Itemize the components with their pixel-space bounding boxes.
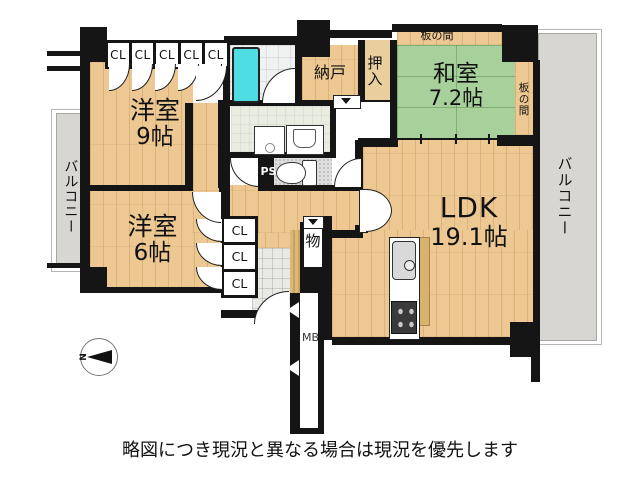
wall <box>47 263 80 268</box>
wall <box>318 293 324 432</box>
itanoma-top-label: 板の間 <box>408 30 466 42</box>
floor-plan: バルコニー バルコニー <box>0 0 640 480</box>
western9-label: 洋室 9帖 <box>95 97 215 150</box>
meter-box-label: MB <box>302 332 316 345</box>
western6-size: 6帖 <box>95 241 210 266</box>
toilet-bowl <box>276 162 306 184</box>
pipe-space: PS <box>258 158 274 186</box>
wall <box>531 357 540 382</box>
wall <box>224 36 298 45</box>
mono-label: 物 <box>304 233 322 250</box>
wall <box>47 66 80 71</box>
wall <box>218 100 230 188</box>
caption: 略図につき現況と異なる場合は現況を優先します <box>0 441 640 461</box>
mono-door-notch <box>308 219 318 225</box>
meter-box-strip <box>300 293 318 428</box>
nando-label: 納戸 <box>301 64 359 82</box>
wall <box>90 287 227 293</box>
closet-cell: CL <box>224 245 255 268</box>
compass-north-label: N <box>79 353 89 361</box>
pipe-space-label: PS <box>261 166 272 178</box>
western6-label: 洋室 6帖 <box>95 213 210 266</box>
washer-drain <box>265 143 275 153</box>
wall <box>47 51 80 56</box>
tick <box>488 134 490 144</box>
wall <box>390 40 397 140</box>
balcony-right-label: バルコニー <box>556 146 573 246</box>
vanity-basin <box>293 129 316 148</box>
balcony-left-label: バルコニー <box>62 148 77 244</box>
wall <box>330 106 336 158</box>
ldk-label: LDK 19.1帖 <box>395 193 543 250</box>
bathtub <box>232 47 260 103</box>
oshiire-label: 押入 <box>366 44 383 98</box>
oshiire-track <box>364 100 390 102</box>
japanese-room-name: 和室 <box>400 62 512 87</box>
ldk-name: LDK <box>395 193 543 224</box>
wall <box>515 135 539 146</box>
western9-name: 洋室 <box>95 97 215 125</box>
wall <box>330 30 392 38</box>
ldk-size: 19.1帖 <box>395 224 543 250</box>
itanoma-side-label: 板の間 <box>517 70 529 128</box>
japanese-room-label: 和室 7.2帖 <box>400 62 512 110</box>
wall <box>300 267 322 293</box>
western6-name: 洋室 <box>95 213 210 241</box>
closet-cell: CL <box>224 219 255 242</box>
wall <box>358 138 398 147</box>
closet-cell: CL <box>132 43 153 67</box>
closet-cell: CL <box>205 43 226 67</box>
mb-notch <box>287 360 299 376</box>
compass: N <box>80 338 118 376</box>
toilet-door-arc <box>334 158 361 187</box>
wall <box>332 337 512 345</box>
closet-cell: CL <box>108 43 129 67</box>
wall <box>510 322 538 357</box>
fusuma-track <box>397 138 497 140</box>
closet-cell: CL <box>181 43 202 67</box>
western9-door-arc <box>230 158 259 187</box>
tick <box>420 134 422 144</box>
kitchen-faucet <box>404 260 415 271</box>
wall <box>80 40 90 293</box>
closet-cell: CL <box>224 272 255 295</box>
closet-column: CL CL CL <box>221 216 258 298</box>
wall <box>90 185 187 191</box>
nando-door-notch <box>341 98 351 104</box>
tick <box>455 134 457 144</box>
japanese-room-size: 7.2帖 <box>400 87 512 110</box>
compass-needle <box>87 350 112 364</box>
wall <box>502 25 538 62</box>
closet-cell: CL <box>156 43 177 67</box>
western9-size: 9帖 <box>95 125 215 150</box>
wall <box>358 40 365 102</box>
entrance-step <box>290 230 300 293</box>
wall <box>290 428 324 434</box>
kitchen-stove <box>391 301 417 334</box>
